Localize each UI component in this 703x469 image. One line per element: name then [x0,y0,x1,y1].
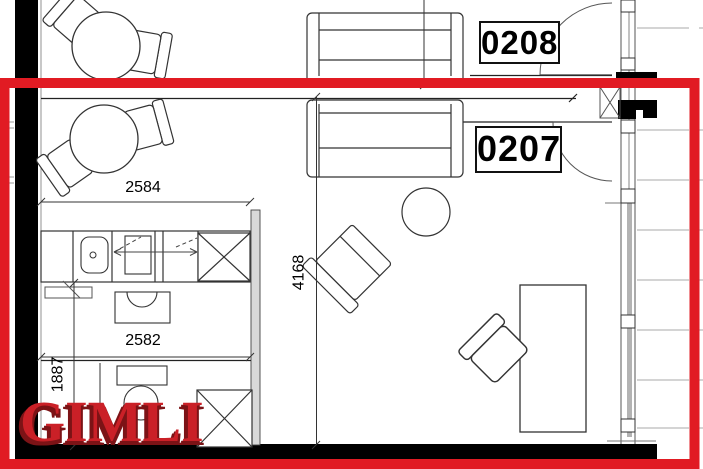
dimension-living-depth: 4168 [291,247,308,299]
dimension-top-width: 2584 [117,179,169,196]
sofa-0207 [307,100,463,177]
window-wall [605,0,656,444]
dim-line-2584 [37,198,254,206]
unit-0208-furniture [42,0,463,83]
dimension-lower-width: 2582 [117,332,169,349]
desk [520,285,586,432]
radiator [45,287,92,298]
fridge-cabinet [198,233,250,281]
dining-table [72,12,140,80]
cooktop [125,236,151,274]
dining-table [70,105,138,173]
shower-cabinet [197,390,252,447]
watermark-logo: GIMLI [20,393,204,451]
party-wall-pier [616,72,657,79]
washbasin [115,292,170,323]
kitchen-sink [81,237,108,273]
dim-line-2582 [37,353,254,361]
unit-label-0207: 0207 [475,126,562,173]
unit-label-0208: 0208 [479,21,560,64]
floor-plan: 0208 0207 2584 2582 1887 4168 GIMLI [0,0,703,469]
coffee-table [402,188,450,236]
sofa-0208 [307,13,463,83]
shaft-hatch [600,87,620,118]
